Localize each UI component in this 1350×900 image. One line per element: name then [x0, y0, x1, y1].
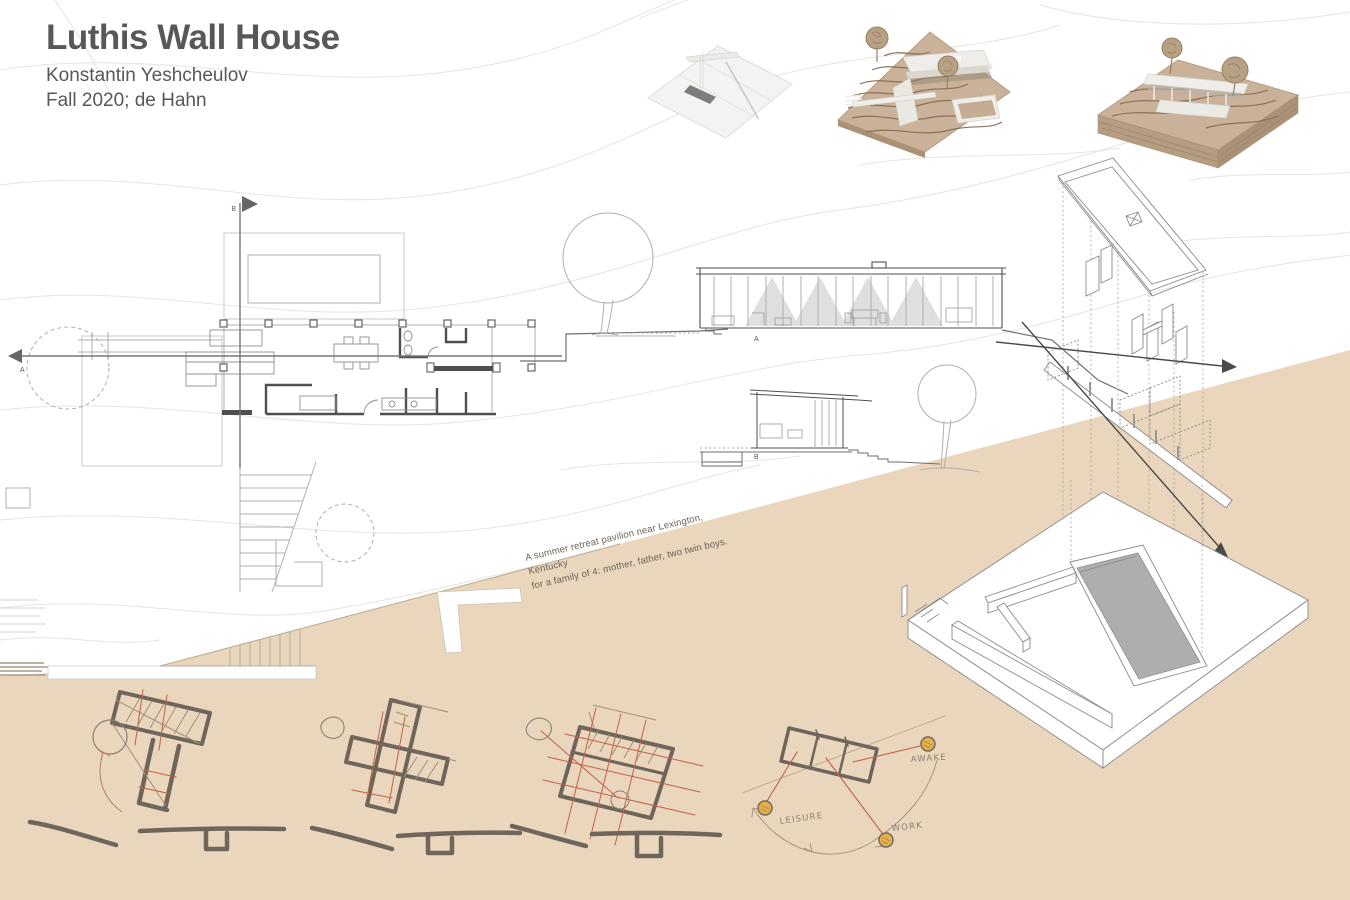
- section-b-drawing: B: [700, 365, 980, 472]
- plan-tree-large: [27, 327, 109, 409]
- plan-section-marker-a: A: [20, 367, 25, 374]
- plan-tree-small: [316, 504, 374, 562]
- cut-arrowhead-icon: [1222, 359, 1237, 373]
- plan-section-marker-b: B: [231, 206, 236, 213]
- section-a-label: A: [754, 336, 759, 343]
- axon-roof-plane: [1058, 158, 1208, 296]
- term-credit: Fall 2020; de Hahn: [46, 88, 340, 113]
- program-node-awake: [921, 737, 935, 751]
- plan-wall-bar-left: [222, 410, 252, 415]
- program-node-leisure: [758, 801, 772, 815]
- author-name: Konstantin Yeshcheulov: [46, 63, 340, 88]
- project-title: Luthis Wall House: [46, 18, 340, 58]
- plan-stairs: [240, 462, 322, 592]
- section-b-furniture: [760, 424, 802, 438]
- plan-wall-bar-right: [427, 363, 500, 372]
- section-line-b: B: [231, 196, 258, 468]
- plan-columns: [220, 320, 535, 371]
- presentation-board: A B: [0, 0, 1350, 900]
- section-flag-b-icon: [242, 196, 258, 212]
- floor-plan-drawing: [6, 233, 535, 592]
- model-photo-white: [648, 46, 792, 138]
- elevation-tree: [563, 213, 653, 335]
- section-a-drawing: A: [520, 262, 1128, 394]
- program-node-work: [879, 833, 893, 847]
- title-block: Luthis Wall House Konstantin Yeshcheulov…: [46, 18, 340, 113]
- model-photo-terrain: [838, 27, 1010, 158]
- section-arrow-a-icon: [8, 349, 22, 363]
- board-artwork: A B: [0, 0, 1350, 900]
- model-photo-slab: [1098, 38, 1298, 168]
- section-b-label: B: [754, 454, 759, 461]
